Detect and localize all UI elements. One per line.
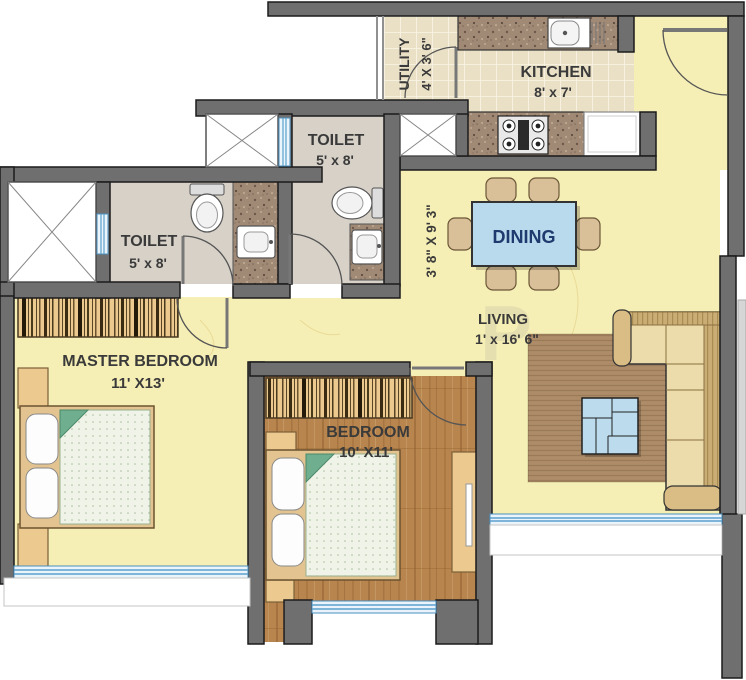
wall-top: [268, 2, 744, 16]
dining-chair: [529, 178, 559, 202]
utility-label: UTILITY: [396, 37, 412, 91]
master-bedroom-label: MASTER BEDROOM: [62, 353, 218, 370]
dining-chair: [486, 178, 516, 202]
exterior-ledge: [738, 300, 746, 514]
chajja-master: [4, 578, 250, 606]
pillow: [272, 458, 304, 510]
sink-fixture: [548, 18, 604, 48]
wall-bedroom-top: [250, 362, 410, 376]
floor-plan-svg: P UTILITY 4' X 3' 6" KITCHEN 8' x 7' TOI…: [0, 0, 746, 680]
dining-chair: [448, 218, 472, 250]
wall-kitchen-bottom: [400, 156, 656, 170]
sofa-back-cushion: [704, 314, 720, 508]
master-bedroom-furniture: [18, 295, 178, 568]
wall-vanity-bottom: [233, 284, 290, 298]
kitchen-counter-top: [458, 16, 618, 50]
kitchen-cabinet: [584, 112, 640, 156]
dining-label: DINING: [493, 227, 556, 247]
living-dims: 1' x 16' 6": [475, 331, 539, 347]
window-duct-middle: [279, 118, 290, 166]
kitchen-label: KITCHEN: [520, 64, 591, 81]
wall-right-upper: [728, 16, 744, 256]
wall-toilet-common-bottom: [342, 284, 400, 298]
wall-kitchen-stub: [640, 112, 656, 156]
bedroom-dims: 10' X11': [339, 444, 393, 461]
wardrobe-bedroom: [266, 378, 412, 418]
chajja-living: [490, 525, 722, 555]
mattress: [306, 454, 396, 576]
toilet-common-label: TOILET: [308, 132, 365, 149]
bedroom-label: BEDROOM: [326, 424, 410, 441]
bed-master: [20, 406, 154, 528]
bed-bedroom: [266, 450, 400, 580]
coffee-table: [582, 398, 641, 457]
mattress: [60, 410, 150, 524]
side-table: [266, 580, 294, 602]
wall-bay-stub-right: [436, 600, 478, 644]
window-toilet-attached: [97, 214, 108, 254]
sofa-armrest-bottom: [664, 486, 722, 510]
wall-toilets-top: [0, 167, 322, 182]
toilet-common-dims: 5' x 8': [316, 152, 354, 168]
wardrobe-master: [18, 295, 178, 337]
window-living: [490, 514, 722, 525]
window-bedroom: [312, 601, 436, 613]
kitchen-dims: 8' x 7': [534, 84, 572, 100]
sofa-armrest-left: [613, 310, 631, 366]
wall-utility-partition: [377, 16, 383, 100]
utility-dims: 4' X 3' 6": [419, 37, 434, 91]
master-bedroom-dims: 11' X13': [111, 375, 165, 392]
wall-right-mid: [720, 256, 736, 526]
passage-dims: 3' 8" X 9' 3": [424, 204, 439, 277]
side-table: [18, 368, 48, 408]
pillow: [272, 514, 304, 566]
wc-fixture: [332, 187, 383, 219]
washbasin-fixture: [237, 226, 275, 258]
wc-fixture: [190, 184, 224, 232]
wall-bay-stub-left: [284, 600, 312, 644]
wall-right-lower: [722, 514, 742, 678]
desk-dresser: [452, 452, 478, 572]
floor-plan: P UTILITY 4' X 3' 6" KITCHEN 8' x 7' TOI…: [0, 0, 746, 680]
washbasin-fixture: [350, 224, 384, 280]
pillow: [26, 468, 58, 518]
window-master: [14, 566, 248, 578]
pillow: [26, 414, 58, 464]
living-label: LIVING: [478, 311, 528, 328]
sofa-top-back: [619, 312, 720, 325]
wall-duct-pier: [456, 114, 468, 156]
hob-fixture: [498, 116, 548, 154]
side-table: [18, 524, 48, 568]
wall-toilet-common-right: [384, 114, 400, 286]
toilet-attached-label: TOILET: [121, 233, 178, 250]
wall-entrance-jamb: [618, 16, 634, 52]
wall-master-top: [14, 282, 180, 298]
toilet-attached-dims: 5' x 8': [129, 255, 167, 271]
bedroom-bay-outside: [312, 613, 436, 642]
